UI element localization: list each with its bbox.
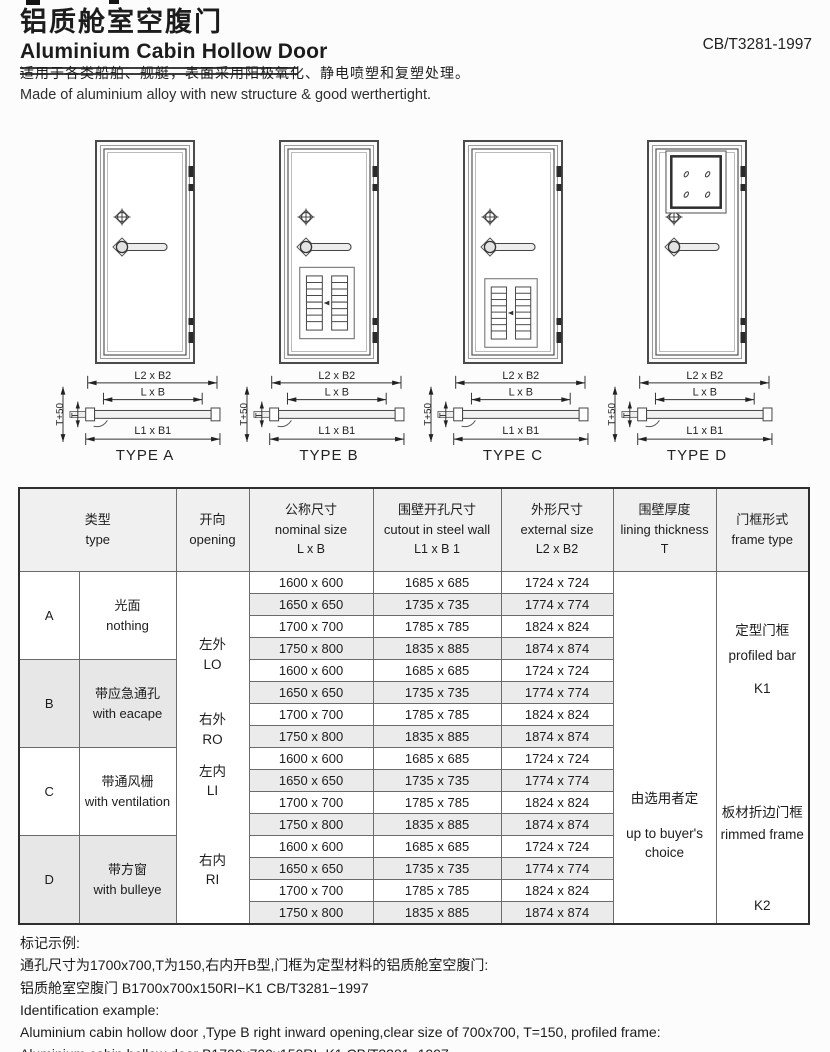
external-size-cell: 1824 x 824 — [501, 792, 613, 814]
door-drawing-plain — [95, 140, 195, 364]
type-letter-cell: D — [19, 836, 79, 925]
example-line2-english: Aluminium cabin hollow door B1700x700x15… — [20, 1044, 661, 1052]
example-title-english: Identification example: — [20, 1000, 661, 1021]
nominal-size-cell: 1750 x 800 — [249, 902, 373, 925]
standard-number: CB/T3281-1997 — [703, 36, 812, 54]
nominal-size-cell: 1750 x 800 — [249, 814, 373, 836]
description-english: Made of aluminium alloy with new structu… — [20, 87, 431, 103]
cutout-size-cell: 1835 x 885 — [373, 814, 501, 836]
opening-cell: 左外LO右外RO左内LI右内RI — [176, 572, 249, 925]
external-size-cell: 1824 x 824 — [501, 616, 613, 638]
example-title-chinese: 标记示例: — [20, 933, 661, 954]
column-header-type: 类型type — [19, 488, 176, 572]
external-size-cell: 1724 x 724 — [501, 572, 613, 594]
cutout-size-cell: 1735 x 735 — [373, 770, 501, 792]
cutout-size-cell: 1835 x 885 — [373, 902, 501, 925]
nominal-size-cell: 1750 x 800 — [249, 638, 373, 660]
cutout-size-cell: 1785 x 785 — [373, 880, 501, 902]
external-size-cell: 1724 x 724 — [501, 748, 613, 770]
door-drawing-window — [647, 140, 747, 364]
example-line2-chinese: 铝质舱室空腹门 B1700x700x150RI−K1 CB/T3281−1997 — [20, 978, 661, 999]
nominal-size-cell: 1700 x 700 — [249, 704, 373, 726]
cutout-size-cell: 1835 x 885 — [373, 726, 501, 748]
nominal-size-cell: 1600 x 600 — [249, 748, 373, 770]
identification-example: 标记示例: 通孔尺寸为1700x700,T为150,右内开B型,门框为定型材料的… — [20, 933, 661, 1052]
cutout-size-cell: 1785 x 785 — [373, 616, 501, 638]
external-size-cell: 1774 x 774 — [501, 770, 613, 792]
cutout-size-cell: 1685 x 685 — [373, 836, 501, 858]
dimension-drawing — [608, 369, 776, 446]
scan-artifact — [26, 0, 40, 5]
external-size-cell: 1724 x 724 — [501, 660, 613, 682]
cutout-size-cell: 1735 x 735 — [373, 682, 501, 704]
external-size-cell: 1824 x 824 — [501, 880, 613, 902]
lining-thickness-cell: 由选用者定up to buyer'schoice — [613, 572, 716, 925]
external-size-cell: 1774 x 774 — [501, 682, 613, 704]
specification-table: 类型type 开向opening 公称尺寸nominal sizeL x B 围… — [18, 487, 810, 925]
spec-table-body: A光面nothing左外LO右外RO左内LI右内RI1600 x 6001685… — [19, 572, 809, 925]
external-size-cell: 1874 x 874 — [501, 902, 613, 925]
nominal-size-cell: 1650 x 650 — [249, 858, 373, 880]
cutout-size-cell: 1685 x 685 — [373, 660, 501, 682]
column-header-external: 外形尺寸external sizeL2 x B2 — [501, 488, 613, 572]
table-header-row: 类型type 开向opening 公称尺寸nominal sizeL x B 围… — [19, 488, 809, 572]
type-label: TYPE B — [299, 447, 358, 464]
nominal-size-cell: 1700 x 700 — [249, 880, 373, 902]
cutout-size-cell: 1785 x 785 — [373, 792, 501, 814]
type-description-cell: 带方窗with bulleye — [79, 836, 176, 925]
description-chinese: 适用于各类船舶、舰艇，表面采用阳极氧化、静电喷塑和复塑处理。 — [20, 63, 470, 83]
nominal-size-cell: 1700 x 700 — [249, 616, 373, 638]
column-header-frame: 门框形式frame type — [716, 488, 809, 572]
type-description-cell: 光面nothing — [79, 572, 176, 660]
column-header-lining: 围壁厚度lining thicknessT — [613, 488, 716, 572]
type-description-cell: 带通风栅with ventilation — [79, 748, 176, 836]
external-size-cell: 1824 x 824 — [501, 704, 613, 726]
external-size-cell: 1724 x 724 — [501, 836, 613, 858]
dimension-drawing — [240, 369, 408, 446]
type-letter-cell: B — [19, 660, 79, 748]
type-letter-cell: C — [19, 748, 79, 836]
page-title-chinese: 铝质舱室空腹门 — [20, 8, 328, 38]
external-size-cell: 1874 x 874 — [501, 814, 613, 836]
external-size-cell: 1774 x 774 — [501, 858, 613, 880]
type-description-cell: 带应急通孔with eacape — [79, 660, 176, 748]
column-header-opening: 开向opening — [176, 488, 249, 572]
column-header-cutout: 围壁开孔尺寸cutout in steel wallL1 x B 1 — [373, 488, 501, 572]
nominal-size-cell: 1700 x 700 — [249, 792, 373, 814]
type-label: TYPE D — [667, 447, 727, 464]
nominal-size-cell: 1650 x 650 — [249, 594, 373, 616]
door-figure-type-c: TYPE C — [421, 140, 605, 464]
door-figure-type-b: TYPE B — [237, 140, 421, 464]
example-line1-english: Aluminium cabin hollow door ,Type B righ… — [20, 1022, 661, 1043]
cutout-size-cell: 1685 x 685 — [373, 748, 501, 770]
nominal-size-cell: 1600 x 600 — [249, 836, 373, 858]
column-header-nominal: 公称尺寸nominal sizeL x B — [249, 488, 373, 572]
table-row: A光面nothing左外LO右外RO左内LI右内RI1600 x 6001685… — [19, 572, 809, 594]
cutout-size-cell: 1835 x 885 — [373, 638, 501, 660]
type-letter-cell: A — [19, 572, 79, 660]
scan-artifact — [109, 0, 119, 4]
external-size-cell: 1874 x 874 — [501, 726, 613, 748]
cutout-size-cell: 1785 x 785 — [373, 704, 501, 726]
door-drawing-escape — [279, 140, 379, 364]
page-title-english: Aluminium Cabin Hollow Door — [20, 40, 328, 64]
cutout-size-cell: 1685 x 685 — [373, 572, 501, 594]
door-diagrams-row: TYPE A TYPE B TYPE C TYPE D — [53, 140, 797, 464]
dimension-drawing — [56, 369, 224, 446]
external-size-cell: 1874 x 874 — [501, 638, 613, 660]
cutout-size-cell: 1735 x 735 — [373, 858, 501, 880]
example-line1-chinese: 通孔尺寸为1700x700,T为150,右内开B型,门框为定型材料的铝质舱室空腹… — [20, 955, 661, 976]
type-label: TYPE A — [116, 447, 175, 464]
catalog-page: 铝质舱室空腹门 Aluminium Cabin Hollow Door CB/T… — [0, 0, 830, 1052]
frame-type-cell: 定型门框profiled barK1板材折边门框rimmed frameK2 — [716, 572, 809, 925]
door-figure-type-a: TYPE A — [53, 140, 237, 464]
cutout-size-cell: 1735 x 735 — [373, 594, 501, 616]
nominal-size-cell: 1600 x 600 — [249, 660, 373, 682]
nominal-size-cell: 1750 x 800 — [249, 726, 373, 748]
door-figure-type-d: TYPE D — [605, 140, 789, 464]
dimension-drawing — [424, 369, 592, 446]
nominal-size-cell: 1600 x 600 — [249, 572, 373, 594]
external-size-cell: 1774 x 774 — [501, 594, 613, 616]
nominal-size-cell: 1650 x 650 — [249, 770, 373, 792]
door-drawing-ventilation — [463, 140, 563, 364]
nominal-size-cell: 1650 x 650 — [249, 682, 373, 704]
type-label: TYPE C — [483, 447, 543, 464]
